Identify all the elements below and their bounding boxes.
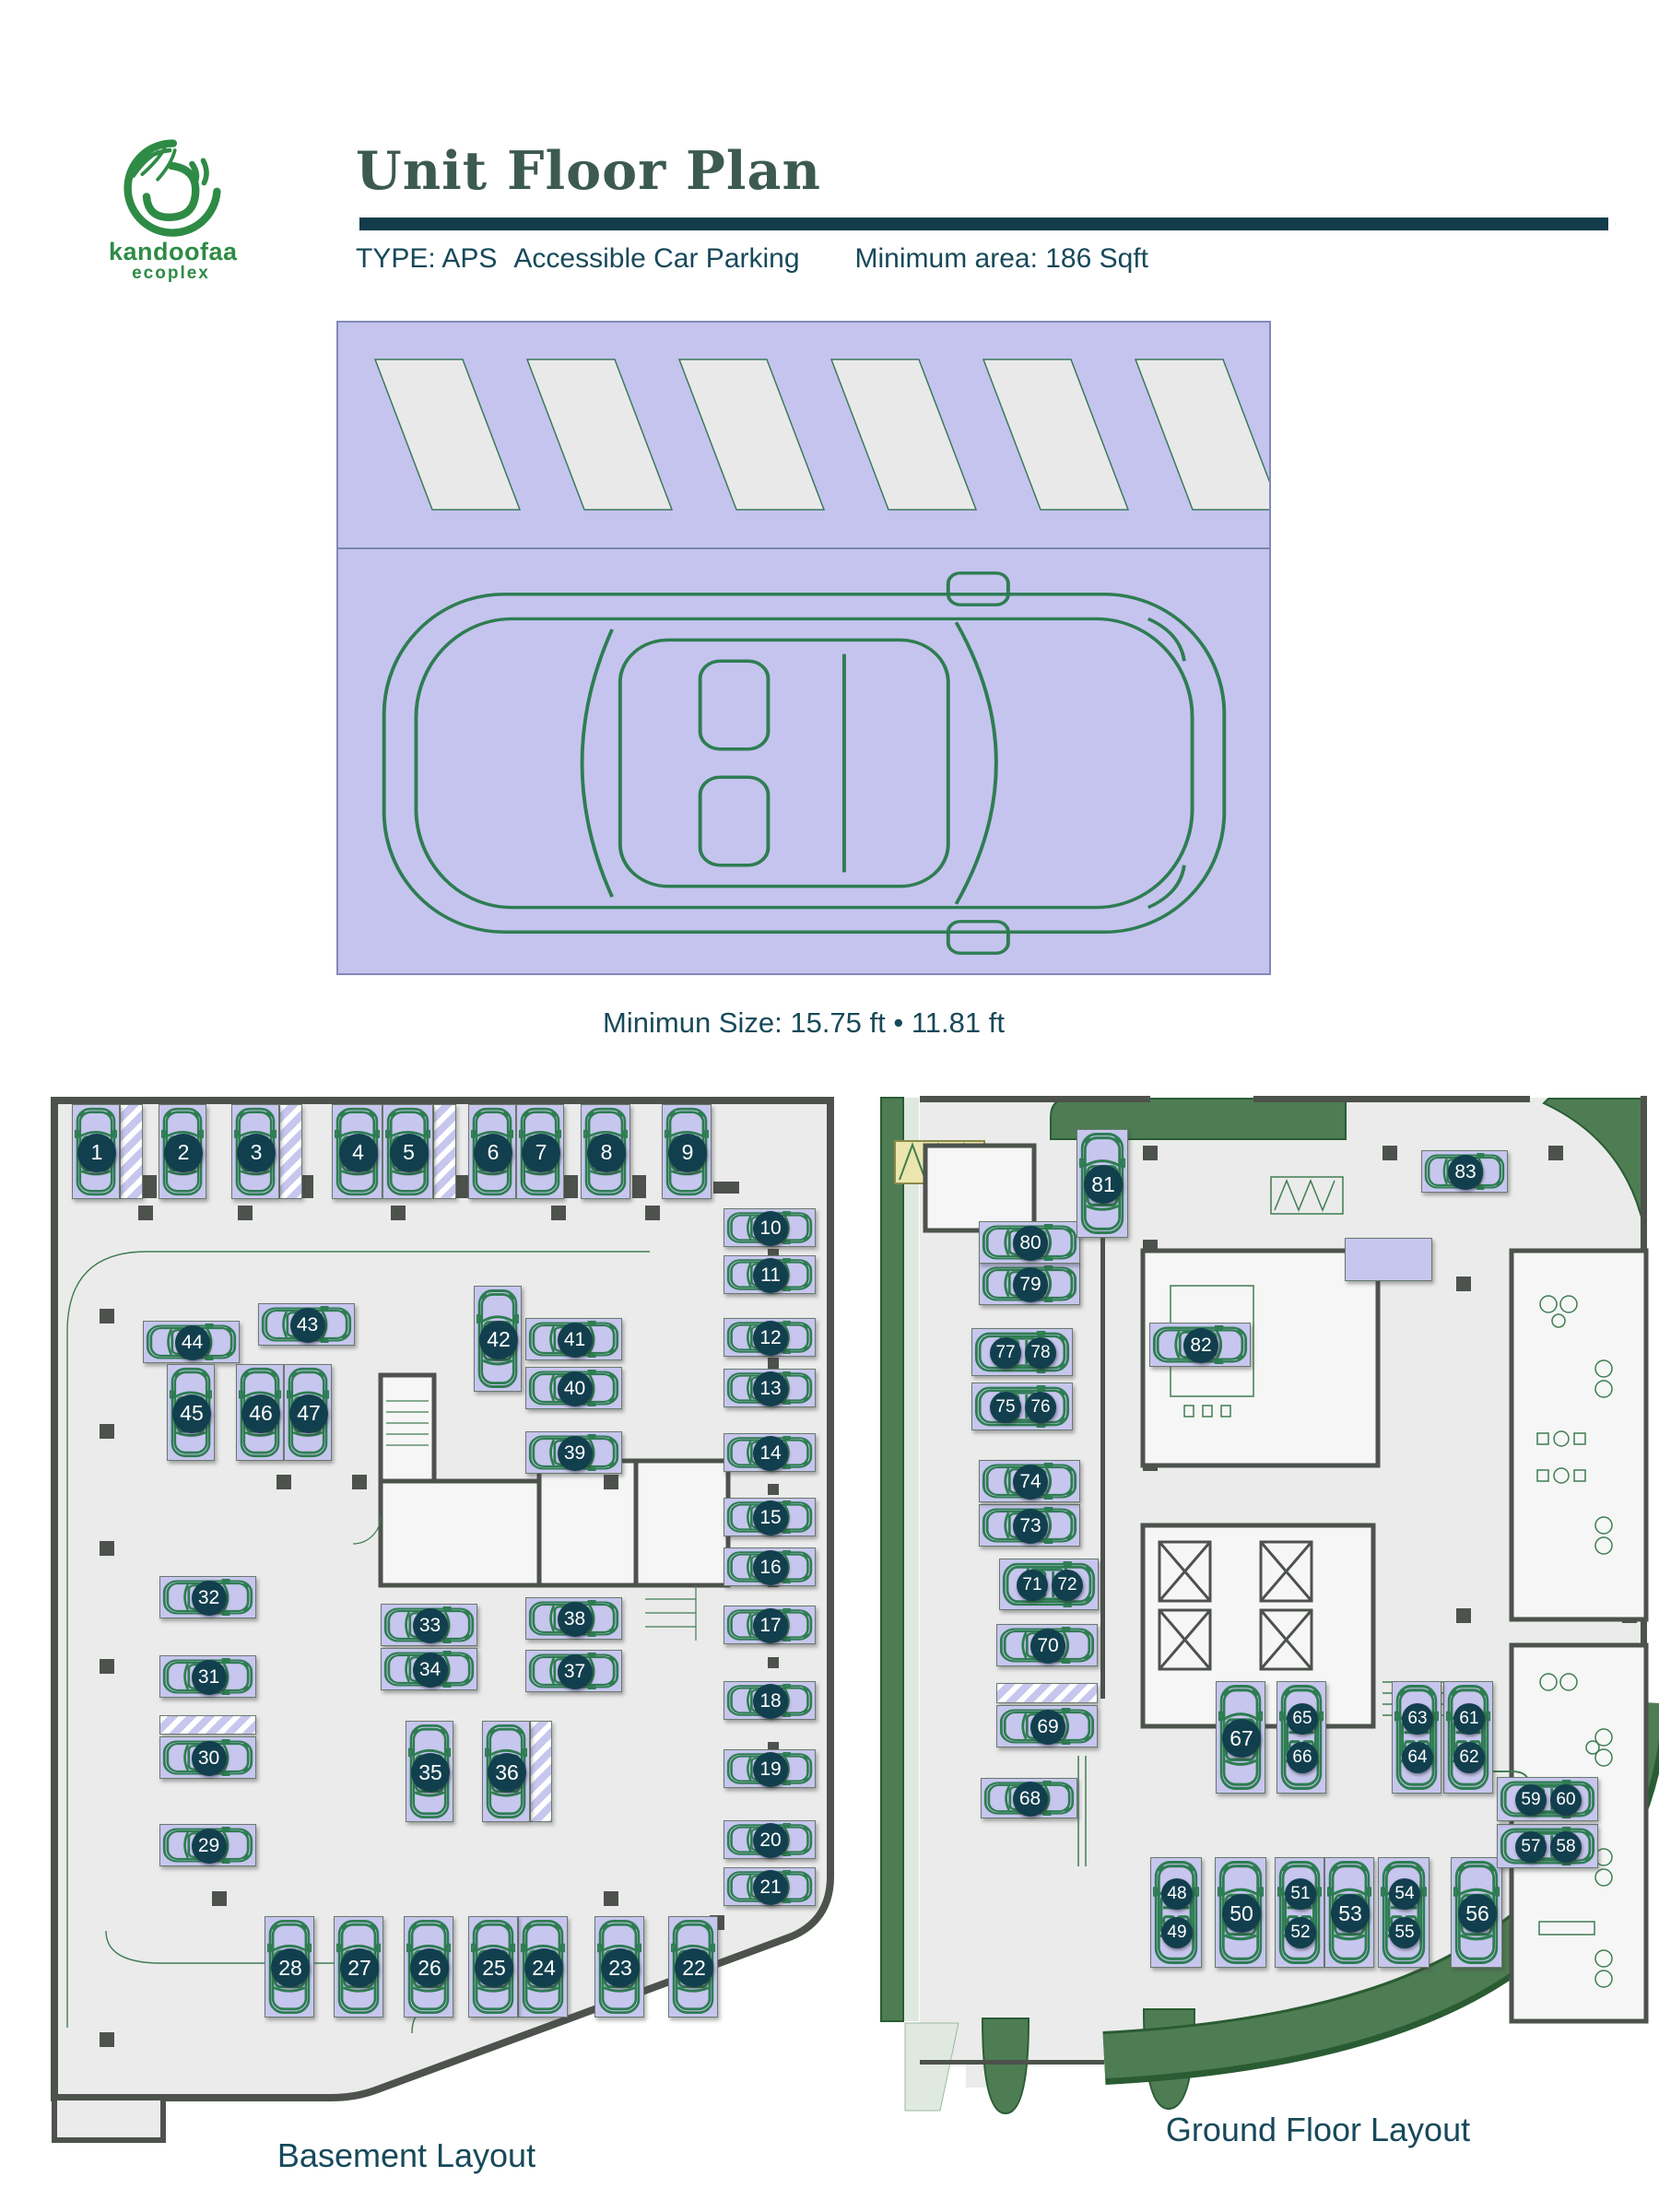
spot-number-badge: 68 bbox=[1013, 1782, 1048, 1817]
basement-parking-spot-47: 47 bbox=[284, 1364, 332, 1461]
spot-number-badge: 32 bbox=[192, 1581, 227, 1616]
spot-number-badge: 66 bbox=[1287, 1742, 1318, 1773]
basement-parking-spot-28: 28 bbox=[265, 1916, 314, 2018]
spot-number-badge: 21 bbox=[753, 1870, 788, 1905]
spot-number-badge: 2 bbox=[164, 1134, 203, 1172]
ground-parking-spot-67: 67 bbox=[1216, 1681, 1265, 1794]
basement-hatched-aisle bbox=[279, 1104, 302, 1199]
spot-number-badge: 40 bbox=[558, 1371, 593, 1406]
spot-number-badge: 25 bbox=[475, 1948, 513, 1987]
basement-parking-spot-32: 32 bbox=[159, 1576, 256, 1618]
spot-number-badge: 46 bbox=[241, 1394, 280, 1433]
spot-number-badge: 23 bbox=[601, 1948, 640, 1987]
spot-number-badge: 67 bbox=[1222, 1719, 1261, 1758]
spot-number-badge: 42 bbox=[479, 1321, 518, 1359]
basement-parking-spot-31: 31 bbox=[159, 1655, 256, 1698]
ground-parking-spot-81: 81 bbox=[1077, 1129, 1128, 1238]
spot-number-badge: 15 bbox=[753, 1500, 788, 1535]
spot-number-badge: 49 bbox=[1161, 1917, 1193, 1948]
spot-number-badge: 19 bbox=[753, 1752, 788, 1787]
ground-parking-spot-70: 70 bbox=[996, 1624, 1098, 1666]
spot-number-badge: 58 bbox=[1550, 1831, 1582, 1863]
spot-number-badge: 44 bbox=[175, 1325, 210, 1360]
parking-spots-layer: 1234567891011121314151617181920212223242… bbox=[0, 0, 1659, 2212]
basement-parking-spot-46: 46 bbox=[236, 1364, 284, 1461]
spot-number-badge: 53 bbox=[1331, 1894, 1370, 1933]
basement-parking-spot-27: 27 bbox=[334, 1916, 383, 2018]
spot-number-badge: 26 bbox=[410, 1948, 449, 1987]
ground-parking-spot-80: 80 bbox=[979, 1221, 1080, 1264]
spot-number-badge: 6 bbox=[474, 1134, 512, 1172]
spot-number-badge: 5 bbox=[390, 1134, 429, 1172]
basement-parking-spot-11: 11 bbox=[724, 1255, 816, 1294]
spot-number-badge: 24 bbox=[524, 1948, 563, 1987]
ground-parking-spot-75-76: 7576 bbox=[971, 1382, 1073, 1430]
ground-parking-spot-83: 83 bbox=[1421, 1150, 1508, 1193]
ground-parking-spot-79: 79 bbox=[979, 1263, 1080, 1305]
basement-parking-spot-24: 24 bbox=[518, 1916, 568, 2018]
spot-number-badge: 3 bbox=[237, 1134, 276, 1172]
basement-parking-spot-1: 1 bbox=[72, 1104, 120, 1199]
spot-number-badge: 16 bbox=[753, 1550, 788, 1585]
spot-number-badge: 31 bbox=[192, 1660, 227, 1695]
basement-parking-spot-41: 41 bbox=[525, 1318, 622, 1360]
spot-number-badge: 47 bbox=[289, 1394, 328, 1433]
spot-number-badge: 7 bbox=[522, 1134, 560, 1172]
basement-parking-spot-45: 45 bbox=[167, 1364, 215, 1461]
ground-caption: Ground Floor Layout bbox=[1166, 2111, 1470, 2149]
spot-number-badge: 57 bbox=[1515, 1831, 1547, 1863]
ground-parking-spot-71-72: 7172 bbox=[999, 1559, 1099, 1610]
spot-number-badge: 17 bbox=[753, 1608, 788, 1643]
basement-parking-spot-19: 19 bbox=[724, 1749, 816, 1788]
basement-parking-spot-2: 2 bbox=[159, 1104, 206, 1199]
ground-hatched-aisle bbox=[996, 1683, 1098, 1703]
spot-number-badge: 80 bbox=[1013, 1226, 1048, 1261]
spot-number-badge: 22 bbox=[675, 1948, 713, 1987]
spot-number-badge: 13 bbox=[753, 1371, 788, 1406]
spot-number-badge: 59 bbox=[1515, 1784, 1547, 1816]
spot-number-badge: 1 bbox=[77, 1134, 116, 1172]
basement-hatched-aisle bbox=[159, 1715, 256, 1735]
spot-number-badge: 62 bbox=[1453, 1742, 1485, 1773]
spot-number-badge: 64 bbox=[1402, 1742, 1433, 1773]
spot-number-badge: 82 bbox=[1183, 1328, 1218, 1363]
spot-number-badge: 71 bbox=[1017, 1570, 1048, 1601]
spot-number-badge: 60 bbox=[1550, 1784, 1582, 1816]
spot-number-badge: 4 bbox=[339, 1134, 378, 1172]
spot-number-badge: 65 bbox=[1287, 1703, 1318, 1735]
spot-number-badge: 51 bbox=[1285, 1878, 1316, 1910]
spot-number-badge: 48 bbox=[1161, 1878, 1193, 1910]
ground-parking-spot-61-62: 6162 bbox=[1443, 1681, 1493, 1794]
basement-parking-spot-5: 5 bbox=[382, 1104, 433, 1199]
basement-parking-spot-36: 36 bbox=[482, 1721, 530, 1822]
basement-parking-spot-7: 7 bbox=[516, 1104, 564, 1199]
spot-number-badge: 70 bbox=[1030, 1629, 1065, 1664]
spot-number-badge: 14 bbox=[753, 1436, 788, 1471]
basement-parking-spot-30: 30 bbox=[159, 1736, 256, 1779]
basement-parking-spot-44: 44 bbox=[143, 1321, 240, 1363]
basement-parking-spot-17: 17 bbox=[724, 1606, 816, 1644]
spot-number-badge: 9 bbox=[668, 1134, 707, 1172]
spot-number-badge: 77 bbox=[990, 1337, 1021, 1369]
spot-number-badge: 12 bbox=[753, 1321, 788, 1356]
ground-parking-spot-73: 73 bbox=[979, 1504, 1080, 1547]
basement-parking-spot-12: 12 bbox=[724, 1318, 816, 1357]
spot-number-badge: 56 bbox=[1458, 1894, 1497, 1933]
ground-parking-spot-56: 56 bbox=[1451, 1857, 1502, 1968]
basement-parking-spot-25: 25 bbox=[468, 1916, 518, 2018]
basement-hatched-aisle bbox=[530, 1721, 552, 1822]
spot-number-badge: 45 bbox=[172, 1394, 211, 1433]
basement-parking-spot-42: 42 bbox=[474, 1286, 522, 1392]
spot-number-badge: 8 bbox=[587, 1134, 626, 1172]
spot-number-badge: 69 bbox=[1030, 1710, 1065, 1745]
basement-parking-spot-33: 33 bbox=[381, 1604, 477, 1646]
spot-number-badge: 11 bbox=[753, 1258, 788, 1293]
basement-parking-spot-4: 4 bbox=[332, 1104, 382, 1199]
spot-number-badge: 83 bbox=[1448, 1155, 1483, 1190]
ground-parking-spot-74: 74 bbox=[979, 1460, 1080, 1502]
basement-parking-spot-15: 15 bbox=[724, 1498, 816, 1536]
basement-parking-spot-3: 3 bbox=[231, 1104, 279, 1199]
spot-number-badge: 18 bbox=[753, 1684, 788, 1719]
spot-number-badge: 35 bbox=[411, 1753, 450, 1792]
basement-parking-spot-40: 40 bbox=[525, 1367, 622, 1409]
basement-parking-spot-29: 29 bbox=[159, 1824, 256, 1866]
spot-number-badge: 41 bbox=[558, 1323, 593, 1358]
spot-number-badge: 29 bbox=[192, 1829, 227, 1864]
spot-number-badge: 30 bbox=[192, 1741, 227, 1776]
basement-parking-spot-13: 13 bbox=[724, 1369, 816, 1407]
basement-parking-spot-6: 6 bbox=[468, 1104, 516, 1199]
ground-parking-spot-69: 69 bbox=[996, 1705, 1098, 1747]
ground-parking-spot-68: 68 bbox=[981, 1778, 1077, 1818]
basement-hatched-aisle bbox=[120, 1104, 143, 1199]
basement-parking-spot-9: 9 bbox=[662, 1104, 712, 1199]
spot-number-badge: 63 bbox=[1402, 1703, 1433, 1735]
ground-parking-spot-65-66: 6566 bbox=[1277, 1681, 1326, 1794]
spot-number-badge: 81 bbox=[1084, 1165, 1123, 1204]
basement-parking-spot-43: 43 bbox=[258, 1303, 355, 1346]
basement-parking-spot-14: 14 bbox=[724, 1433, 816, 1472]
ground-parking-spot-53: 53 bbox=[1324, 1857, 1374, 1968]
basement-hatched-aisle bbox=[433, 1104, 456, 1199]
spot-number-badge: 10 bbox=[753, 1211, 788, 1246]
spot-number-badge: 72 bbox=[1052, 1570, 1083, 1601]
spot-number-badge: 61 bbox=[1453, 1703, 1485, 1735]
ground-parking-spot-57-58: 5758 bbox=[1497, 1824, 1598, 1868]
ground-parking-spot-63-64: 6364 bbox=[1392, 1681, 1441, 1794]
basement-parking-spot-39: 39 bbox=[525, 1431, 622, 1474]
spot-number-badge: 38 bbox=[558, 1602, 593, 1637]
basement-caption: Basement Layout bbox=[277, 2136, 535, 2175]
basement-parking-spot-10: 10 bbox=[724, 1208, 816, 1247]
spot-number-badge: 73 bbox=[1013, 1509, 1048, 1544]
spot-number-badge: 74 bbox=[1013, 1465, 1048, 1500]
ground-parking-spot-blank bbox=[1345, 1238, 1432, 1281]
basement-parking-spot-20: 20 bbox=[724, 1820, 816, 1859]
ground-parking-spot-59-60: 5960 bbox=[1497, 1777, 1598, 1821]
spot-number-badge: 76 bbox=[1025, 1392, 1056, 1423]
spot-number-badge: 36 bbox=[488, 1753, 526, 1792]
basement-parking-spot-21: 21 bbox=[724, 1867, 816, 1906]
spot-number-badge: 28 bbox=[271, 1948, 310, 1987]
basement-parking-spot-18: 18 bbox=[724, 1681, 816, 1720]
spot-number-badge: 50 bbox=[1222, 1894, 1261, 1933]
ground-parking-spot-77-78: 7778 bbox=[971, 1328, 1073, 1376]
ground-parking-spot-50: 50 bbox=[1215, 1857, 1266, 1968]
basement-parking-spot-8: 8 bbox=[581, 1104, 630, 1199]
ground-parking-spot-51-52: 5152 bbox=[1275, 1857, 1324, 1968]
basement-parking-spot-26: 26 bbox=[404, 1916, 453, 2018]
ground-parking-spot-48-49: 4849 bbox=[1150, 1857, 1202, 1968]
basement-parking-spot-38: 38 bbox=[525, 1597, 622, 1640]
spot-number-badge: 75 bbox=[990, 1392, 1021, 1423]
basement-parking-spot-16: 16 bbox=[724, 1547, 816, 1586]
spot-number-badge: 79 bbox=[1013, 1267, 1048, 1302]
spot-number-badge: 78 bbox=[1025, 1337, 1056, 1369]
spot-number-badge: 20 bbox=[753, 1823, 788, 1858]
ground-parking-spot-82: 82 bbox=[1149, 1323, 1251, 1367]
spot-number-badge: 43 bbox=[290, 1308, 325, 1343]
spot-number-badge: 39 bbox=[558, 1436, 593, 1471]
spot-number-badge: 33 bbox=[413, 1608, 448, 1643]
basement-parking-spot-22: 22 bbox=[668, 1916, 718, 2018]
spot-number-badge: 54 bbox=[1389, 1878, 1420, 1910]
spot-number-badge: 55 bbox=[1389, 1917, 1420, 1948]
unit-floor-plan-page: kandoofaa ecoplex Unit Floor Plan TYPE: … bbox=[0, 0, 1659, 2212]
basement-parking-spot-34: 34 bbox=[381, 1648, 477, 1690]
spot-number-badge: 34 bbox=[413, 1653, 448, 1688]
basement-parking-spot-37: 37 bbox=[525, 1650, 622, 1692]
spot-number-badge: 52 bbox=[1285, 1917, 1316, 1948]
spot-number-badge: 37 bbox=[558, 1654, 593, 1689]
basement-parking-spot-35: 35 bbox=[406, 1721, 453, 1822]
spot-number-badge: 27 bbox=[340, 1948, 379, 1987]
ground-parking-spot-54-55: 5455 bbox=[1378, 1857, 1430, 1968]
basement-parking-spot-23: 23 bbox=[594, 1916, 644, 2018]
